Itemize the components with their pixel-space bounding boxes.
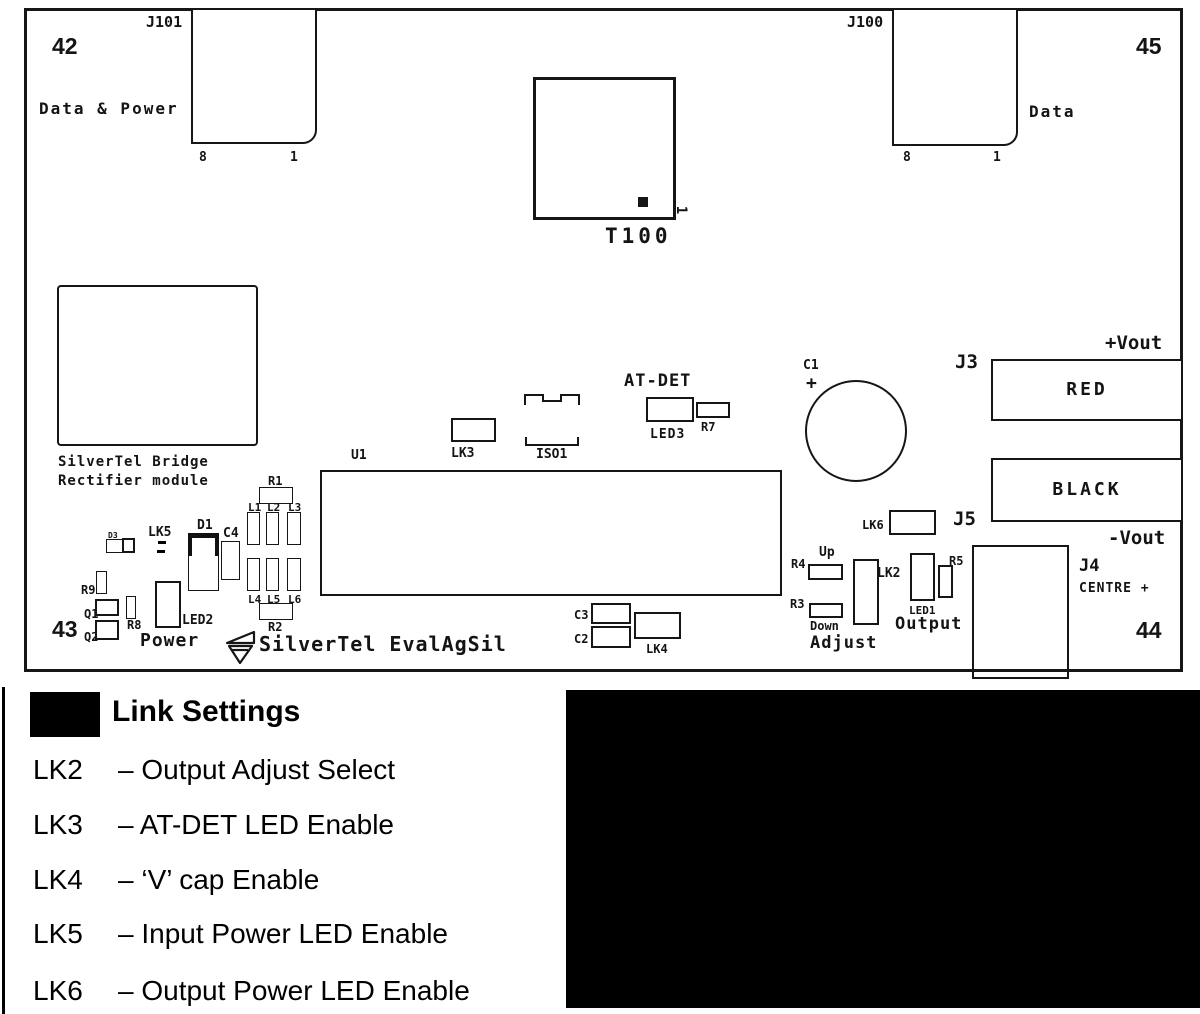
lk4-link xyxy=(634,612,681,639)
led2-label: LED2 xyxy=(182,614,213,627)
legend-title: Link Settings xyxy=(112,695,300,728)
legend-bullet-square xyxy=(30,692,100,737)
t100-pin1-dot xyxy=(638,197,648,207)
legend-row-desc: – Input Power LED Enable xyxy=(118,919,448,950)
j5-black-terminal: BLACK xyxy=(991,458,1183,522)
up-label: Up xyxy=(819,546,835,559)
lk2-label: LK2 xyxy=(877,567,900,580)
c4-component xyxy=(221,541,240,580)
c3-component xyxy=(591,603,631,624)
u1-ic xyxy=(320,470,782,596)
bridge-rectifier-module xyxy=(57,285,258,446)
ref-44: 44 xyxy=(1136,619,1162,642)
l1-component xyxy=(247,512,260,545)
atdet-label: AT-DET xyxy=(624,373,691,390)
bridge-caption-line2: Rectifier module xyxy=(58,474,209,488)
l2-component xyxy=(266,512,279,545)
legend-row-desc: – ‘V’ cap Enable xyxy=(118,865,319,896)
c2-label: C2 xyxy=(574,633,588,645)
j100-label: J100 xyxy=(847,15,883,30)
bridge-caption-line1: SilverTel Bridge xyxy=(58,455,209,469)
silvertel-logo-icon xyxy=(224,630,257,665)
legend-redaction-block xyxy=(566,690,1200,1008)
iso1-label: ISO1 xyxy=(536,448,567,461)
r8-component xyxy=(126,596,136,619)
lk5-label: LK5 xyxy=(148,526,171,539)
lk6-link xyxy=(889,510,936,535)
r3-component xyxy=(809,603,843,618)
r7-component xyxy=(696,402,730,418)
j5-label: J5 xyxy=(953,510,976,529)
c4-label: C4 xyxy=(223,527,239,540)
legend-row-desc: – AT-DET LED Enable xyxy=(118,810,394,841)
j4-label: J4 xyxy=(1079,558,1099,575)
r2-component xyxy=(259,603,293,620)
ref-45: 45 xyxy=(1136,35,1162,58)
brand-label: SilverTel EvalAgSil xyxy=(259,634,507,654)
led1-component xyxy=(910,553,935,601)
j101-pin8: 8 xyxy=(199,151,207,164)
vout-plus-label: +Vout xyxy=(1105,334,1162,353)
t100-label: T100 xyxy=(605,226,672,247)
r4-component xyxy=(808,564,843,580)
j3-red-terminal: RED xyxy=(991,359,1183,421)
lk3-link xyxy=(451,418,496,442)
legend-row-key: LK4 xyxy=(33,865,83,896)
r4-label: R4 xyxy=(791,558,805,570)
u1-label: U1 xyxy=(351,449,367,462)
led2-component xyxy=(155,581,181,628)
r9-label: R9 xyxy=(81,584,95,596)
r3-label: R3 xyxy=(790,598,804,610)
legend-left-rule xyxy=(2,687,5,1014)
r9-component xyxy=(96,571,107,594)
power-label: Power xyxy=(140,632,199,650)
j101-caption: Data & Power xyxy=(39,101,179,117)
t100-pin1: 1 xyxy=(674,206,688,214)
lk4-label: LK4 xyxy=(646,643,668,655)
c1-label: C1 xyxy=(803,359,819,372)
lk5-pad-2 xyxy=(157,550,165,553)
j101-pin1: 1 xyxy=(290,151,298,164)
iso1-outline-bottom xyxy=(525,437,579,447)
j100-pin8: 8 xyxy=(903,151,911,164)
j4-centre-label: CENTRE + xyxy=(1079,582,1150,595)
l4-component xyxy=(247,558,260,591)
l6-component xyxy=(287,558,301,591)
j100-caption: Data xyxy=(1029,104,1076,120)
output-label: Output xyxy=(895,616,962,633)
legend-row-desc: – Output Power LED Enable xyxy=(118,976,470,1007)
led3-component xyxy=(646,397,694,422)
c1-plus: + xyxy=(806,375,817,393)
j101-label: J101 xyxy=(146,15,182,30)
iso1-outline-top xyxy=(524,393,580,406)
lk3-label: LK3 xyxy=(451,447,474,460)
c1-capacitor xyxy=(805,380,907,482)
legend-row-desc: – Output Adjust Select xyxy=(118,755,395,786)
legend-row-key: LK6 xyxy=(33,976,83,1007)
t100-transformer xyxy=(533,77,676,220)
r1-label: R1 xyxy=(268,475,282,487)
c3-label: C3 xyxy=(574,609,588,621)
r7-label: R7 xyxy=(701,421,715,433)
q1-component xyxy=(95,599,119,616)
adjust-label: Adjust xyxy=(810,635,877,652)
j101-connector xyxy=(191,8,317,144)
ref-43: 43 xyxy=(52,618,78,641)
c2-component xyxy=(591,626,631,648)
down-label: Down xyxy=(810,620,839,632)
ref-42: 42 xyxy=(52,35,78,58)
led3-label: LED3 xyxy=(650,428,685,441)
black-label: BLACK xyxy=(1052,481,1121,499)
lk6-label: LK6 xyxy=(862,519,884,531)
legend-row-key: LK3 xyxy=(33,810,83,841)
l3-component xyxy=(287,512,301,545)
pcb-figure: J101 8 1 42 Data & Power 1 T100 J100 8 1… xyxy=(0,0,1200,1014)
j3-label: J3 xyxy=(955,353,978,372)
j4-connector xyxy=(972,545,1069,679)
l5-component xyxy=(266,558,279,591)
red-label: RED xyxy=(1066,381,1108,399)
lk2-link xyxy=(853,559,879,625)
d3-component-b xyxy=(122,538,135,553)
j100-connector xyxy=(892,8,1018,146)
legend-row-key: LK5 xyxy=(33,919,83,950)
d1-label: D1 xyxy=(197,519,213,532)
q2-component xyxy=(95,620,119,640)
legend-row-key: LK2 xyxy=(33,755,83,786)
j100-pin1: 1 xyxy=(993,151,1001,164)
vout-minus-label: -Vout xyxy=(1108,529,1165,548)
lk5-pad-1 xyxy=(158,541,166,544)
d1-cathode-band xyxy=(188,533,219,556)
r5-component xyxy=(938,565,953,598)
